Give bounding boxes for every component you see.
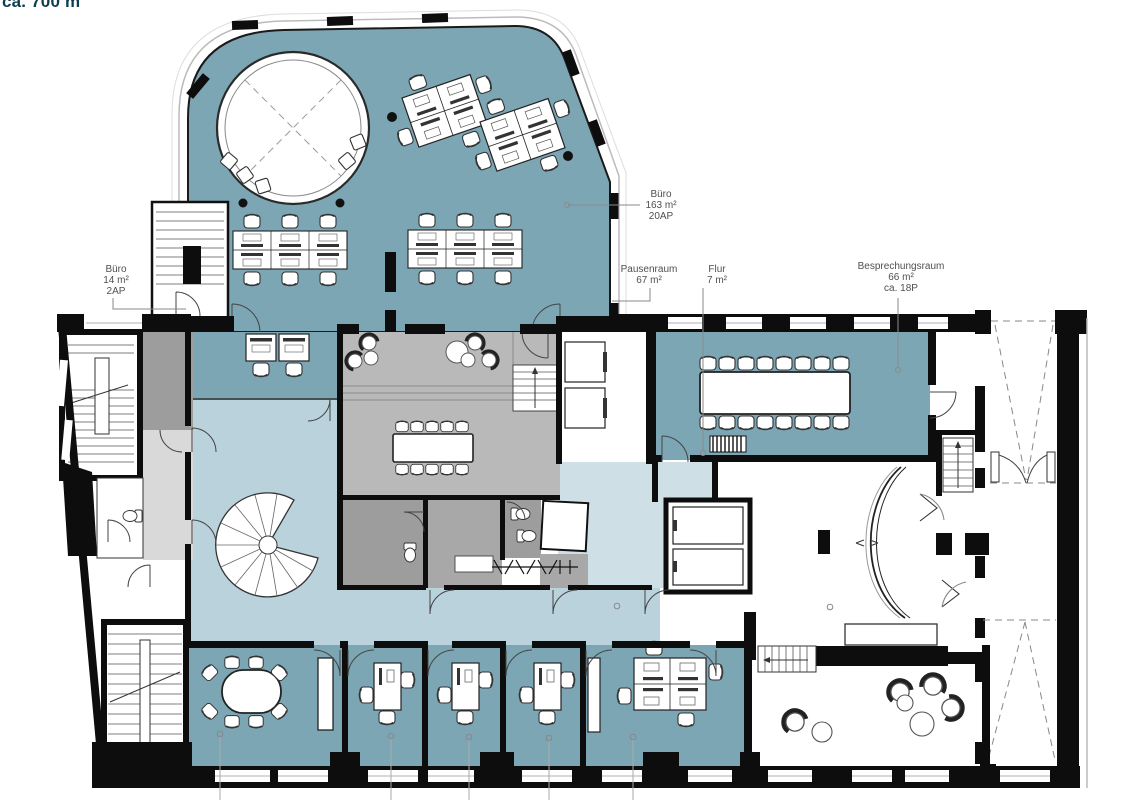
pausenraum-stair	[513, 365, 557, 411]
bench-desk-row-1	[233, 215, 347, 286]
label-buero-gross: Büro 163 m² 20AP	[645, 189, 677, 222]
wing-wall-stub	[385, 252, 396, 292]
pause-table	[393, 421, 473, 475]
floor-plan-svg: Büro 163 m² 20AP Büro 14 m² 2AP Pausenra…	[0, 0, 1125, 803]
label-text: 14 m²	[103, 275, 129, 286]
vanity-counter	[455, 556, 493, 572]
tilted-store-room	[541, 501, 588, 551]
label-text: 2AP	[107, 286, 126, 297]
label-text: Büro	[105, 264, 127, 275]
label-pausenraum: Pausenraum 67 m²	[621, 264, 678, 286]
elevator-block	[666, 500, 750, 592]
label-text: 66 m²	[888, 272, 914, 283]
label-text: 67 m²	[636, 275, 662, 286]
label-text: Flur	[708, 264, 726, 275]
label-text: Büro	[650, 189, 672, 200]
corridor-south-wall	[188, 641, 748, 648]
corridor-north-wall	[340, 585, 652, 590]
sideboard-hatched	[710, 436, 746, 452]
label-text: Besprechungsraum	[858, 261, 945, 272]
label-text: Pausenraum	[621, 264, 678, 275]
hall-sideboard	[845, 624, 937, 645]
label-besprechungsraum: Besprechungsraum 66 m² ca. 18P	[858, 261, 945, 294]
lounge-stair	[758, 646, 816, 672]
circular-meeting-pod	[217, 52, 369, 204]
bench-desk-row-2	[408, 214, 522, 285]
label-text: ca. 18P	[884, 283, 918, 294]
label-text: 20AP	[649, 211, 674, 222]
sideboard	[318, 658, 333, 730]
leader-pausenraum	[612, 288, 650, 301]
upper-stair	[152, 202, 228, 318]
floor-plan-page: ca. 700 m	[0, 0, 1125, 803]
label-text: 163 m²	[645, 200, 677, 211]
wc-core-block	[340, 495, 588, 588]
label-buero-klein: Büro 14 m² 2AP	[103, 264, 129, 297]
label-text: 7 m²	[707, 275, 728, 286]
shaft-block	[556, 330, 652, 464]
wing-open-office	[172, 10, 627, 332]
label-flur: Flur 7 m²	[707, 264, 728, 286]
